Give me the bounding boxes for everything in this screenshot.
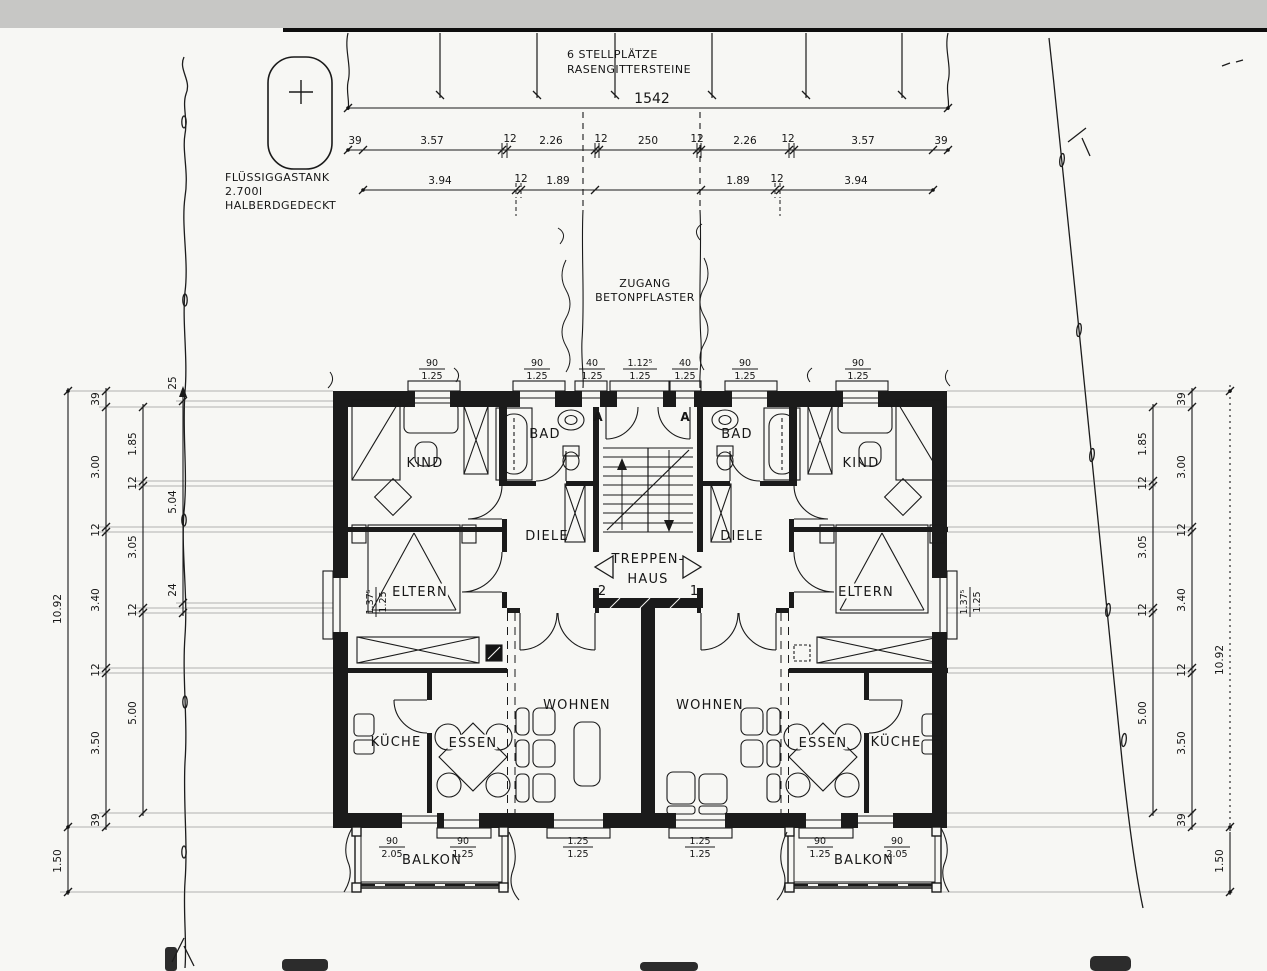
door-arc — [869, 700, 902, 733]
dim-label: 3.50 — [90, 731, 102, 754]
sofa-icon — [667, 708, 780, 814]
dim-label: 10.92 — [52, 594, 64, 624]
dim-label: 3.94 — [844, 175, 868, 187]
dim-label: 12 — [90, 523, 102, 536]
door-arc — [536, 451, 566, 481]
room-label-kind-right: KIND — [843, 456, 880, 471]
svg-text:1.37⁵: 1.37⁵ — [959, 589, 970, 614]
chair-icon — [786, 773, 810, 797]
room-label-diele-right: DIELE — [720, 529, 764, 544]
tank-cross-icon — [289, 80, 313, 104]
dim-label: 250 — [638, 135, 658, 147]
dim-label: 39 — [1176, 813, 1188, 826]
dimension-chain-left-b: 1.85 12 3.05 12 5.00 — [127, 403, 147, 817]
scan-bottom-artifacts — [165, 947, 1131, 971]
dim-label: 39 — [348, 135, 361, 147]
window-dim: 90 — [426, 358, 438, 369]
bed-icon — [352, 400, 400, 480]
dim-label: 2.26 — [539, 135, 563, 147]
door-arc — [468, 485, 502, 519]
svg-text:1.25: 1.25 — [972, 591, 983, 612]
window-dim: 90 — [457, 836, 469, 847]
furniture-right — [667, 400, 944, 814]
dim-label: 1.89 — [726, 175, 749, 187]
window-dim: 2.05 — [381, 849, 402, 860]
window-dim: 1.25 — [421, 371, 442, 382]
chair-icon — [486, 773, 510, 797]
room-label-wohnen-left: WOHNEN — [543, 698, 611, 713]
dim-label: 3.00 — [90, 455, 102, 478]
apartment-door-flag-left — [595, 556, 613, 578]
window-dim: 1.25 — [734, 371, 755, 382]
dim-label: 12 — [594, 133, 607, 145]
dining-table-icon — [435, 723, 512, 797]
tank-label: 2.700l — [225, 185, 263, 198]
window-dim: 1.25 — [452, 849, 473, 860]
access-label: BETONPFLASTER — [595, 291, 695, 304]
room-label-eltern-left: ELTERN — [392, 585, 448, 600]
dim-label: 3.94 — [428, 175, 452, 187]
window-dim: 1.25 — [567, 849, 588, 860]
chair-icon — [835, 773, 859, 797]
door-arc — [701, 613, 738, 650]
dim-label: 12 — [514, 173, 527, 185]
dim-label: 39 — [1176, 392, 1188, 405]
dim-label: 12 — [1176, 523, 1188, 536]
dim-label: 12 — [90, 663, 102, 676]
dim-label: 39 — [934, 135, 947, 147]
dining-table-icon — [784, 723, 861, 797]
room-label-essen-right: ESSEN — [799, 736, 848, 751]
door-arc — [520, 613, 557, 650]
wardrobe-icon — [817, 637, 939, 663]
dim-label: 3.00 — [1176, 455, 1188, 478]
window-dim: 2.05 — [886, 849, 907, 860]
dim-label: 12 — [1137, 603, 1149, 616]
desk-icon — [838, 403, 892, 433]
dim-label: 3.05 — [1137, 535, 1149, 558]
svg-text:1.25: 1.25 — [378, 591, 389, 612]
dim-label: 1.89 — [546, 175, 569, 187]
dim-label: 5.00 — [1137, 701, 1149, 724]
floor-plan-sheet: FLÜSSIGGASTANK 2.700l HALBERDGEDECKT 6 S… — [0, 0, 1267, 971]
scan-top-strip — [0, 0, 1267, 32]
window-dim: 1.25 — [629, 371, 650, 382]
room-label-treppenhaus: HAUS — [627, 572, 668, 587]
sink-icon — [558, 410, 584, 430]
dim-label: 3.57 — [851, 135, 874, 147]
dim-label: 2.26 — [733, 135, 757, 147]
dim-label: 12 — [781, 133, 794, 145]
room-label-essen-left: ESSEN — [449, 736, 498, 751]
room-label-bad-left: BAD — [529, 427, 560, 442]
dim-label: 25 — [167, 376, 179, 389]
dim-label: 3.40 — [1176, 588, 1188, 611]
stairs — [603, 448, 693, 532]
window-dim: 1.25 — [581, 371, 602, 382]
door-arc — [394, 700, 427, 733]
dim-label: 10.92 — [1214, 645, 1226, 675]
dimension-row-2: 3.94 12 1.89 1.89 12 3.94 — [359, 173, 937, 216]
coffee-table-icon — [574, 722, 600, 786]
dimension-chain-right-outer: 10.92 1.50 — [1214, 385, 1234, 896]
dim-label: 1.85 — [127, 432, 139, 455]
dim-label: 1542 — [634, 91, 670, 107]
gas-tank: FLÜSSIGGASTANK 2.700l HALBERDGEDECKT — [225, 57, 336, 212]
door-arc — [794, 485, 828, 519]
dim-label: 39 — [90, 813, 102, 826]
dim-label: 12 — [770, 173, 783, 185]
window-dim: 1.25 — [689, 836, 710, 847]
dim-label: 12 — [127, 476, 139, 489]
apartment-number-left: 2 — [598, 584, 606, 599]
dim-label: 3.05 — [127, 535, 139, 558]
apartment-number-right: 1 — [690, 584, 698, 599]
tank-label: FLÜSSIGGASTANK — [225, 171, 330, 184]
stair-arrow-up-icon — [617, 458, 627, 470]
window-dim: 1.25 — [847, 371, 868, 382]
window-dim: 90 — [739, 358, 751, 369]
stair-arrow-down-icon — [664, 520, 674, 532]
door-arc — [794, 552, 834, 592]
dim-label: 3.57 — [420, 135, 443, 147]
pillow-icon — [885, 479, 922, 516]
window-dim: 1.25 — [674, 371, 695, 382]
wardrobe-icon — [808, 406, 832, 474]
window-dim: 1.25 — [567, 836, 588, 847]
window-dim: 1.12⁵ — [628, 358, 653, 369]
chair-icon — [437, 773, 461, 797]
window-dim: 90 — [814, 836, 826, 847]
window-dim: 90 — [531, 358, 543, 369]
dim-label: 39 — [90, 392, 102, 405]
dimension-chain-right-b: 1.85 12 3.05 12 5.00 — [1137, 403, 1157, 817]
switch-box-icon — [794, 645, 810, 661]
dimension-chain-left-a: 39 3.00 12 3.40 12 3.50 39 — [90, 387, 110, 831]
parking-label: RASENGITTERSTEINE — [567, 63, 691, 76]
door-arc — [462, 552, 502, 592]
switch-box-icon — [486, 645, 502, 661]
window-dim: 1.25 — [809, 849, 830, 860]
dim-label: 12 — [127, 603, 139, 616]
pillow-icon — [375, 479, 412, 516]
room-label-kueche-right: KÜCHE — [871, 733, 922, 750]
dim-label: 3.40 — [90, 588, 102, 611]
svg-text:1.37⁵: 1.37⁵ — [365, 589, 376, 614]
wardrobe-icon — [464, 406, 488, 474]
window-dim: 90 — [386, 836, 398, 847]
parking-label: 6 STELLPLÄTZE — [567, 48, 658, 61]
room-label-diele-left: DIELE — [525, 529, 569, 544]
window-dim: 1.25 — [689, 849, 710, 860]
section-marker-a-left: A — [593, 410, 603, 424]
dim-label: 1.50 — [1214, 849, 1226, 872]
dimension-row-1: 39 3.57 12 2.26 12 250 12 2.26 12 3.57 3… — [344, 133, 952, 158]
door-arc — [730, 451, 760, 481]
window-dim: 1.25 — [526, 371, 547, 382]
dim-label: 24 — [167, 583, 179, 597]
room-label-eltern-right: ELTERN — [838, 585, 894, 600]
room-label-kind-left: KIND — [407, 456, 444, 471]
window-dim: 90 — [852, 358, 864, 369]
tank-label: HALBERDGEDECKT — [225, 199, 336, 212]
wardrobe-icon — [357, 637, 479, 663]
dim-label: 12 — [690, 133, 703, 145]
property-boundary-right — [1049, 38, 1243, 908]
room-label-balkon-right: BALKON — [834, 853, 894, 868]
entrance-door-arc — [606, 407, 638, 439]
dim-label: 1.50 — [52, 849, 64, 872]
door-arc — [558, 613, 595, 650]
dim-label: 12 — [1176, 663, 1188, 676]
section-marker-a-right: A — [680, 410, 690, 424]
room-label-kueche-left: KÜCHE — [371, 733, 422, 750]
window-dim-side-right: 1.37⁵ 1.25 — [959, 587, 983, 617]
desk-icon — [404, 403, 458, 433]
dim-label: 12 — [503, 133, 516, 145]
access-label: ZUGANG — [619, 277, 670, 290]
dim-label: 12 — [1137, 476, 1149, 489]
window-dim: 40 — [586, 358, 598, 369]
dimension-chain-right-a: 39 3.00 12 3.40 12 3.50 39 — [1176, 387, 1196, 831]
dimension-chain-left-outer: 10.92 1.50 — [52, 387, 72, 896]
dim-label: 5.04 — [167, 490, 179, 514]
door-arc — [739, 613, 776, 650]
apartment-door-flag-right — [683, 556, 701, 578]
room-label-treppenhaus: TREPPEN- — [610, 552, 684, 567]
room-label-bad-right: BAD — [721, 427, 752, 442]
dimension-total-width: 1542 — [344, 91, 952, 112]
dim-label: 5.00 — [127, 701, 139, 724]
dim-label: 3.50 — [1176, 731, 1188, 754]
window-dim: 90 — [891, 836, 903, 847]
window-dim: 40 — [679, 358, 691, 369]
room-label-wohnen-right: WOHNEN — [676, 698, 744, 713]
sofa-icon — [516, 708, 555, 802]
kitchen-counter-icon — [354, 714, 374, 736]
dim-label: 1.85 — [1137, 432, 1149, 455]
access-walkway — [328, 112, 950, 388]
